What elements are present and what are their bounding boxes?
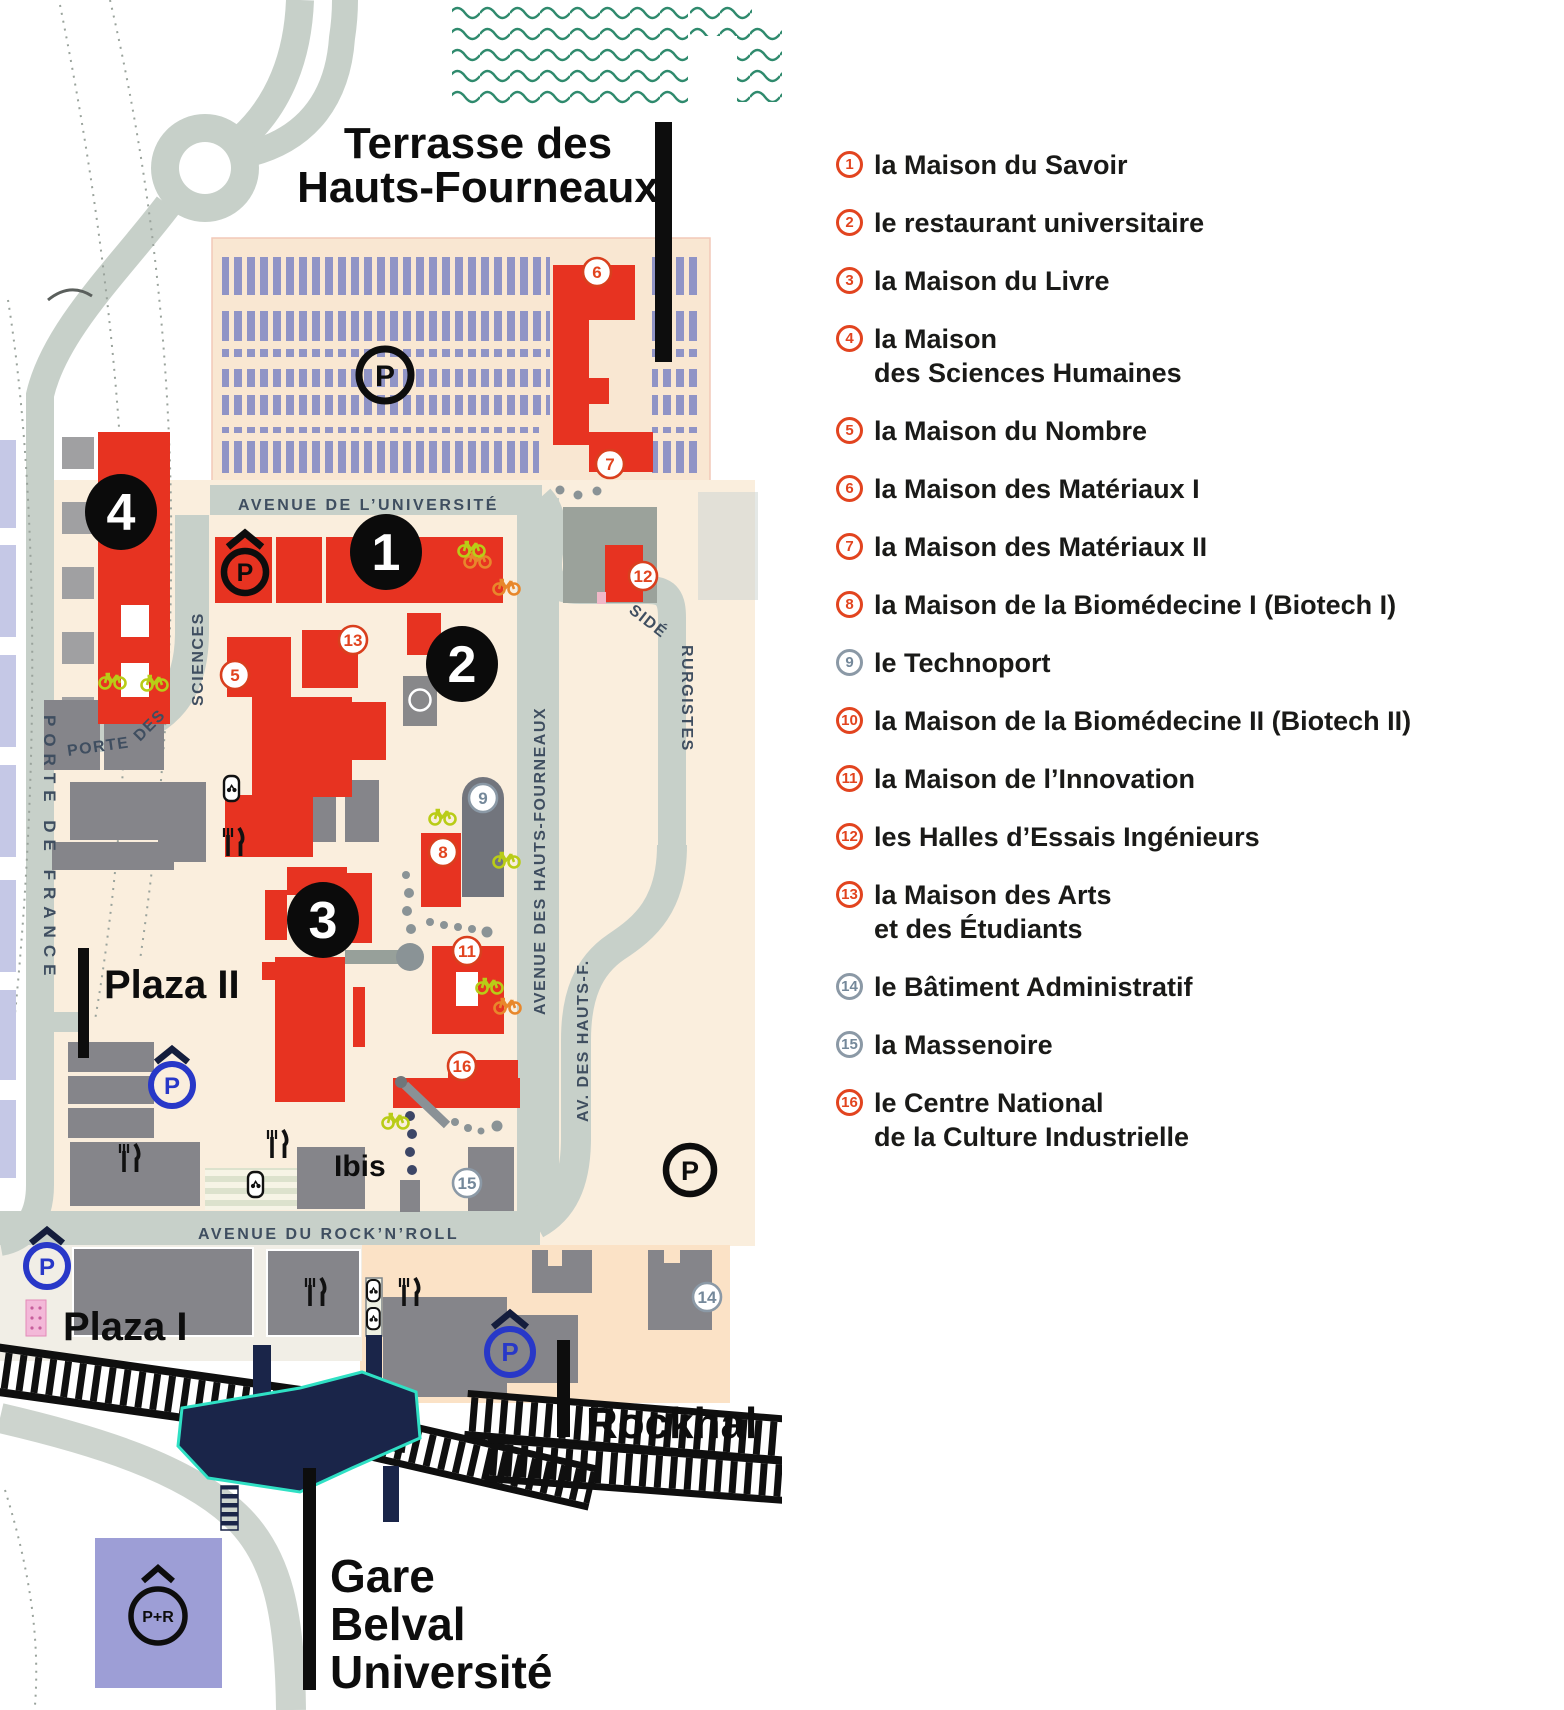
legend-marker-5: 5 bbox=[836, 417, 863, 444]
legend-item-3: 3la Maison du Livre bbox=[836, 264, 1476, 298]
street-label-rocknroll: AVENUE DU ROCK’N’ROLL bbox=[198, 1226, 459, 1243]
legend-item-16: 16le Centre Nationalde la Culture Indust… bbox=[836, 1086, 1476, 1154]
legend-label-11: la Maison de l’Innovation bbox=[874, 762, 1195, 796]
legend-marker-2: 2 bbox=[836, 209, 863, 236]
legend-marker-7: 7 bbox=[836, 533, 863, 560]
legend-item-6: 6la Maison des Matériaux I bbox=[836, 472, 1476, 506]
legend: 1la Maison du Savoir2le restaurant unive… bbox=[836, 148, 1476, 1178]
legend-marker-6: 6 bbox=[836, 475, 863, 502]
marker-14: 14 bbox=[693, 1283, 721, 1311]
legend-marker-10: 10 bbox=[836, 707, 863, 734]
legend-label-5: la Maison du Nombre bbox=[874, 414, 1147, 448]
legend-marker-11: 11 bbox=[836, 765, 863, 792]
wave-patch bbox=[452, 0, 688, 106]
wave-patch bbox=[737, 26, 782, 102]
svg-text:1: 1 bbox=[372, 524, 401, 582]
svg-text:2: 2 bbox=[448, 636, 477, 694]
svg-text:5: 5 bbox=[230, 666, 239, 685]
title-bar bbox=[655, 122, 672, 362]
legend-label-8: la Maison de la Biomédecine I (Biotech I… bbox=[874, 588, 1396, 622]
bike-locker-icon bbox=[224, 776, 239, 801]
legend-marker-12: 12 bbox=[836, 823, 863, 850]
gare-label-line1: Gare bbox=[330, 1550, 435, 1602]
marker-15: 15 bbox=[453, 1169, 481, 1197]
legend-item-13: 13la Maison des Artset des Étudiants bbox=[836, 878, 1476, 946]
legend-marker-8: 8 bbox=[836, 591, 863, 618]
svg-text:P+R: P+R bbox=[142, 1609, 174, 1626]
svg-text:6: 6 bbox=[592, 263, 601, 282]
legend-marker-16: 16 bbox=[836, 1089, 863, 1116]
legend-label-2: le restaurant universitaire bbox=[874, 206, 1204, 240]
rockhal-label: Rockhal bbox=[586, 1399, 757, 1448]
legend-label-7: la Maison des Matériaux II bbox=[874, 530, 1207, 564]
svg-text:7: 7 bbox=[605, 455, 614, 474]
marker-6: 6 bbox=[583, 258, 611, 286]
street-label-universite: AVENUE DE L’UNIVERSITÉ bbox=[238, 495, 499, 514]
marker-9: 9 bbox=[469, 784, 497, 812]
pink-nub bbox=[597, 592, 606, 604]
map-title-line2: Hauts-Fourneaux bbox=[297, 163, 659, 212]
map-title-line1: Terrasse des bbox=[344, 119, 612, 168]
legend-label-15: la Massenoire bbox=[874, 1028, 1053, 1062]
roundabout bbox=[151, 114, 259, 222]
svg-text:12: 12 bbox=[634, 567, 653, 586]
legend-label-12: les Halles d’Essais Ingénieurs bbox=[874, 820, 1260, 854]
svg-text:13: 13 bbox=[344, 631, 363, 650]
plaza-circle bbox=[396, 943, 424, 971]
marker-7: 7 bbox=[596, 450, 624, 478]
pink-building-icon bbox=[26, 1300, 46, 1336]
svg-text:11: 11 bbox=[458, 942, 476, 961]
marker-12: 12 bbox=[629, 562, 657, 590]
legend-item-10: 10la Maison de la Biomédecine II (Biotec… bbox=[836, 704, 1476, 738]
legend-marker-1: 1 bbox=[836, 151, 863, 178]
svg-text:P: P bbox=[681, 1156, 699, 1186]
svg-text:14: 14 bbox=[698, 1288, 717, 1307]
legend-item-7: 7la Maison des Matériaux II bbox=[836, 530, 1476, 564]
ground-patch bbox=[698, 492, 758, 600]
legend-label-9: le Technoport bbox=[874, 646, 1051, 680]
marker-16: 16 bbox=[448, 1052, 476, 1080]
marker-11: 11 bbox=[453, 937, 481, 965]
road-north bbox=[240, 0, 300, 140]
legend-label-6: la Maison des Matériaux I bbox=[874, 472, 1200, 506]
svg-text:4: 4 bbox=[107, 484, 136, 542]
street-label-hauts-fourneaux: AVENUE DES HAUTS-FOURNEAUX bbox=[532, 707, 549, 1015]
street-label-av-hauts-f: AV. DES HAUTS-F. bbox=[575, 959, 592, 1122]
svg-text:16: 16 bbox=[453, 1057, 472, 1076]
legend-item-15: 15la Massenoire bbox=[836, 1028, 1476, 1062]
legend-item-12: 12les Halles d’Essais Ingénieurs bbox=[836, 820, 1476, 854]
bike-locker-icon bbox=[367, 1308, 380, 1329]
legend-item-9: 9le Technoport bbox=[836, 646, 1476, 680]
legend-item-2: 2le restaurant universitaire bbox=[836, 206, 1476, 240]
gare-label-line3: Université bbox=[330, 1646, 552, 1698]
marker-4: 4 bbox=[85, 474, 157, 550]
campus-map: P P P P P P P+R bbox=[0, 0, 782, 1710]
svg-text:P: P bbox=[375, 360, 395, 393]
gare-label-line2: Belval bbox=[330, 1598, 466, 1650]
marker-3: 3 bbox=[287, 882, 359, 958]
marker-5: 5 bbox=[221, 661, 249, 689]
rockhal-bar bbox=[557, 1340, 570, 1437]
legend-marker-13: 13 bbox=[836, 881, 863, 908]
legend-label-16: le Centre Nationalde la Culture Industri… bbox=[874, 1086, 1189, 1154]
svg-text:P: P bbox=[237, 559, 254, 587]
svg-text:P: P bbox=[39, 1254, 55, 1281]
campus-map-page: P P P P P P P+R bbox=[0, 0, 1564, 1710]
gare-bar bbox=[303, 1468, 316, 1690]
edge-buildings bbox=[0, 440, 16, 1178]
legend-label-10: la Maison de la Biomédecine II (Biotech … bbox=[874, 704, 1411, 738]
plaza1-label: Plaza I bbox=[63, 1305, 188, 1349]
plaza2-label: Plaza II bbox=[104, 963, 240, 1007]
marker-13: 13 bbox=[339, 626, 367, 654]
street-label-porte-p3: SCIENCES bbox=[190, 612, 207, 706]
legend-label-3: la Maison du Livre bbox=[874, 264, 1110, 298]
legend-item-4: 4la Maisondes Sciences Humaines bbox=[836, 322, 1476, 390]
legend-item-14: 14le Bâtiment Administratif bbox=[836, 970, 1476, 1004]
svg-text:9: 9 bbox=[478, 789, 487, 808]
legend-item-11: 11la Maison de l’Innovation bbox=[836, 762, 1476, 796]
park-and-ride-icon: P+R bbox=[95, 1538, 222, 1688]
marker-8: 8 bbox=[429, 838, 457, 866]
legend-marker-4: 4 bbox=[836, 325, 863, 352]
roundabout-inner bbox=[179, 142, 231, 194]
legend-label-1: la Maison du Savoir bbox=[874, 148, 1128, 182]
bike-locker-icon bbox=[248, 1172, 263, 1197]
legend-marker-3: 3 bbox=[836, 267, 863, 294]
station-stairs bbox=[221, 1486, 238, 1530]
connector bbox=[345, 950, 399, 964]
marker-2: 2 bbox=[426, 626, 498, 702]
svg-text:P: P bbox=[164, 1073, 180, 1100]
legend-marker-15: 15 bbox=[836, 1031, 863, 1058]
legend-label-13: la Maison des Artset des Étudiants bbox=[874, 878, 1112, 946]
path-dot bbox=[395, 1076, 407, 1088]
legend-label-4: la Maisondes Sciences Humaines bbox=[874, 322, 1182, 390]
ibis-label: Ibis bbox=[334, 1150, 386, 1183]
legend-item-5: 5la Maison du Nombre bbox=[836, 414, 1476, 448]
svg-text:3: 3 bbox=[309, 892, 338, 950]
legend-label-14: le Bâtiment Administratif bbox=[874, 970, 1193, 1004]
legend-marker-9: 9 bbox=[836, 649, 863, 676]
plaza2-bar bbox=[78, 948, 89, 1058]
legend-item-8: 8la Maison de la Biomédecine I (Biotech … bbox=[836, 588, 1476, 622]
bike-locker-icon bbox=[367, 1280, 380, 1301]
legend-item-1: 1la Maison du Savoir bbox=[836, 148, 1476, 182]
svg-text:15: 15 bbox=[458, 1174, 477, 1193]
legend-marker-14: 14 bbox=[836, 973, 863, 1000]
water-waves bbox=[452, 0, 782, 106]
svg-text:P: P bbox=[501, 1337, 518, 1367]
svg-text:8: 8 bbox=[438, 843, 447, 862]
street-label-porte-de-france: PORTE DE FRANCE bbox=[40, 715, 59, 982]
marker-1: 1 bbox=[350, 514, 422, 590]
dotted-path bbox=[5, 1490, 36, 1705]
street-label-siderurgistes-p2: RURGISTES bbox=[678, 645, 695, 752]
